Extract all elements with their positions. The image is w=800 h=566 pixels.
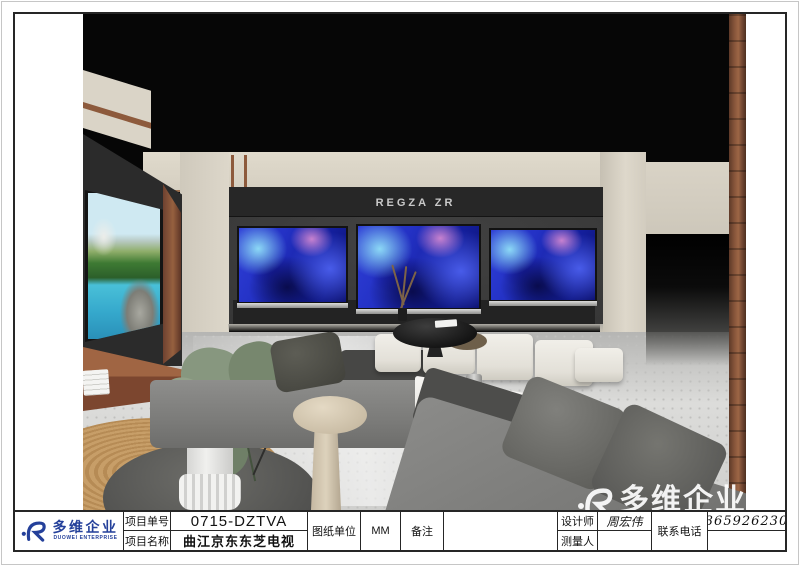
doorway-lintel xyxy=(646,162,731,236)
copper-trim-line xyxy=(231,155,234,188)
project-name-label: 项目名称 xyxy=(123,531,170,550)
twig-pot xyxy=(398,308,407,321)
designer-value: 周宏伟 xyxy=(597,512,651,531)
copper-stripe xyxy=(83,102,151,129)
unit-value: MM xyxy=(360,512,400,550)
project-no-value: 0715-DZTVA xyxy=(170,512,307,531)
duowei-logo-icon xyxy=(577,482,617,510)
project-name-value: 曲江京东东芝电视 xyxy=(170,531,307,550)
phone-value: 13659262305 xyxy=(707,512,785,531)
regza-sign: REGZA ZR xyxy=(376,197,456,209)
tv-screen-left xyxy=(237,226,348,304)
duowei-logo-icon xyxy=(20,517,50,545)
tv-wallpaper-art xyxy=(239,228,346,302)
render-view: REGZA ZR xyxy=(83,14,746,510)
designer-label: 设计师 xyxy=(557,512,597,531)
white-fluted-vase xyxy=(179,438,241,510)
white-ottoman xyxy=(575,348,623,382)
display-tv-left xyxy=(85,190,163,342)
unit-label: 图纸单位 xyxy=(307,512,360,550)
pedestal-table-top xyxy=(293,396,367,434)
phone-label: 联系电话 xyxy=(651,512,707,550)
dried-branch-decor xyxy=(379,264,425,324)
landscape-screen-art xyxy=(88,193,160,339)
wood-pillar xyxy=(729,14,746,510)
watermark-text: 多维企业 xyxy=(619,482,746,510)
title-block: 多维企业 DUOWEI ENTERPRISE 项目单号 0715-DZTVA 图… xyxy=(15,510,785,550)
surveyor-label: 测量人 xyxy=(557,531,597,550)
copper-trim-line xyxy=(244,155,247,188)
remark-value xyxy=(443,512,557,550)
tv-screen-right xyxy=(489,228,597,302)
tv-wallpaper-art xyxy=(491,230,595,300)
watermark: 多维企业 xyxy=(577,482,746,510)
logo-name-en: DUOWEI ENTERPRISE xyxy=(53,535,117,542)
logo-name-cn: 多维企业 xyxy=(53,520,119,535)
drawing-sheet: REGZA ZR xyxy=(0,0,800,566)
book-stack xyxy=(83,369,110,396)
copper-trim-column xyxy=(163,184,181,364)
brand-sign-band: REGZA ZR xyxy=(228,187,603,217)
surveyor-value xyxy=(597,531,651,550)
left-cream-wall xyxy=(180,152,229,338)
remark-label: 备注 xyxy=(400,512,443,550)
phone-value-empty-row xyxy=(707,531,785,550)
vase-base xyxy=(179,474,241,510)
company-logo: 多维企业 DUOWEI ENTERPRISE xyxy=(15,512,123,550)
doorway-floor-shadow xyxy=(646,332,731,366)
left-header-slab xyxy=(83,70,151,149)
project-no-label: 项目单号 xyxy=(123,512,170,531)
